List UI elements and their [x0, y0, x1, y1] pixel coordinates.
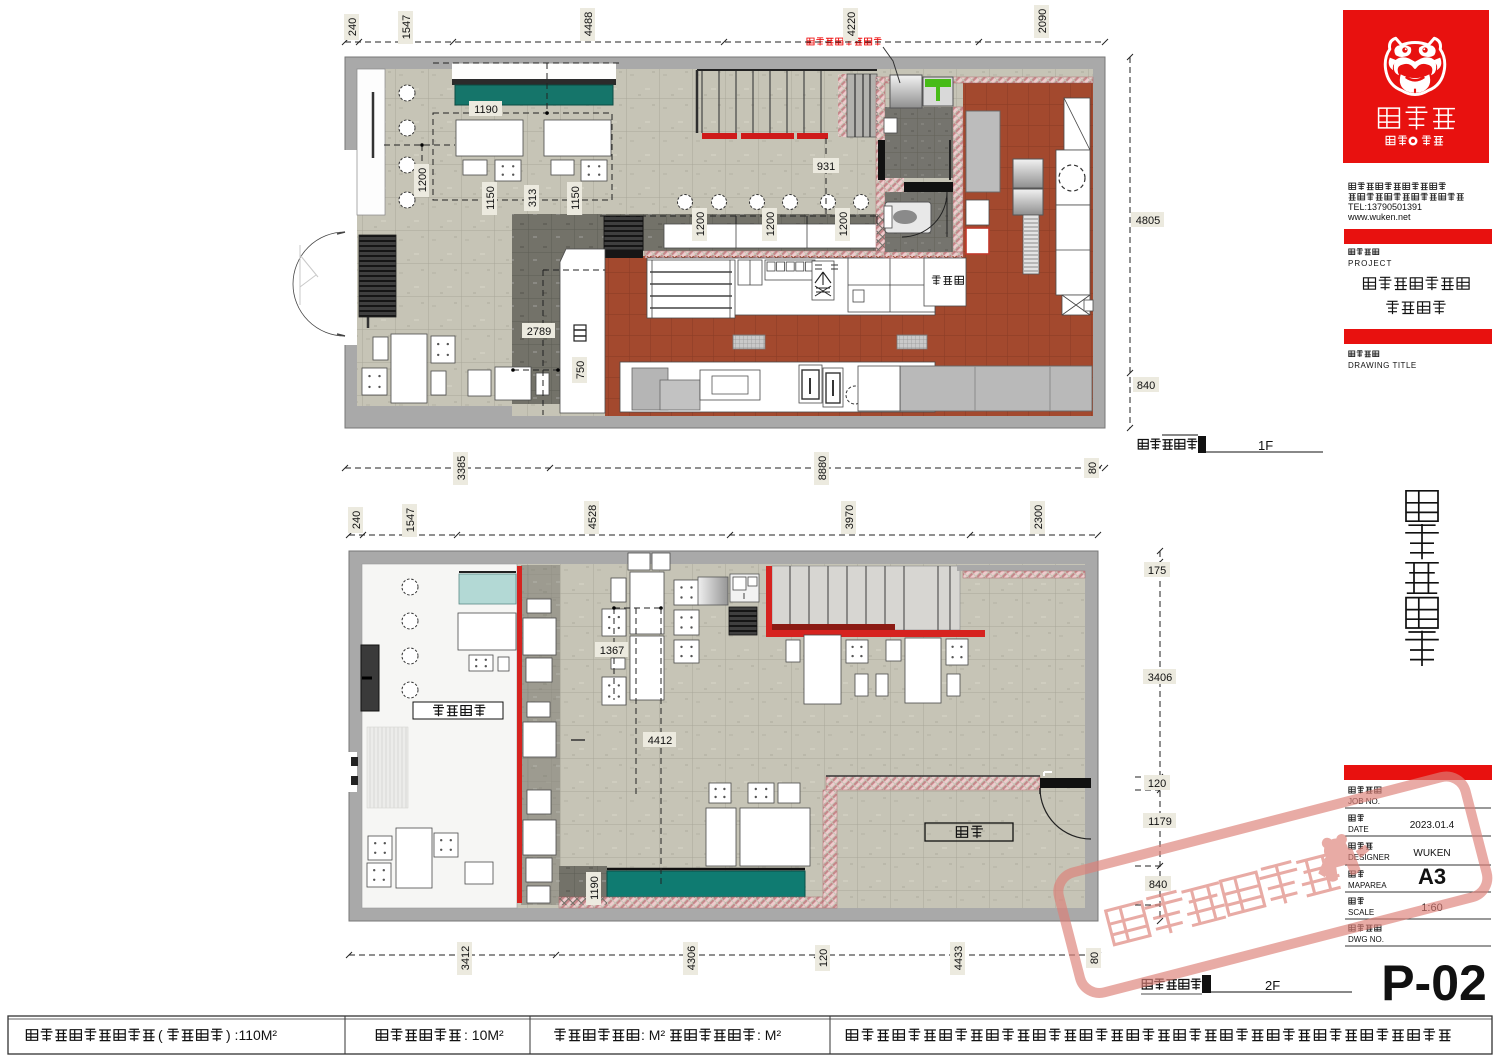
svg-text:1F: 1F: [1258, 438, 1273, 453]
svg-text:1150: 1150: [485, 186, 497, 210]
svg-text:3385: 3385: [456, 456, 468, 480]
svg-text:1200: 1200: [765, 212, 777, 236]
svg-text:3970: 3970: [844, 505, 856, 529]
svg-text:) :110M²: ) :110M²: [226, 1027, 277, 1043]
svg-text:SCALE: SCALE: [1348, 908, 1374, 917]
svg-text:: 10M²: : 10M²: [464, 1027, 504, 1043]
svg-text:840: 840: [1149, 879, 1167, 891]
svg-text:4412: 4412: [648, 735, 672, 747]
svg-text:2090: 2090: [1037, 9, 1049, 33]
svg-text:2F: 2F: [1265, 978, 1280, 993]
svg-text:2789: 2789: [527, 326, 551, 338]
svg-text:(: (: [158, 1027, 163, 1043]
svg-text:8880: 8880: [817, 456, 829, 480]
svg-text:4220: 4220: [846, 12, 858, 36]
svg-text:TEL:13790501391: TEL:13790501391: [1348, 202, 1422, 212]
svg-text:4528: 4528: [587, 505, 599, 529]
svg-text:4306: 4306: [686, 946, 698, 970]
svg-text:3406: 3406: [1148, 672, 1172, 684]
svg-text:1367: 1367: [600, 645, 624, 657]
svg-text:3412: 3412: [460, 946, 472, 970]
svg-text:: M²: : M²: [757, 1027, 781, 1043]
svg-text:DATE: DATE: [1348, 825, 1369, 834]
svg-text:240: 240: [347, 18, 359, 36]
svg-text:1200: 1200: [838, 212, 850, 236]
svg-text:240: 240: [351, 511, 363, 529]
svg-text:www.wuken.net: www.wuken.net: [1347, 212, 1411, 222]
svg-text:4805: 4805: [1136, 215, 1160, 227]
svg-text:1200: 1200: [417, 168, 429, 192]
svg-text:2023.01.4: 2023.01.4: [1410, 820, 1455, 831]
svg-text:MAPAREA: MAPAREA: [1348, 881, 1387, 890]
svg-text:80: 80: [1087, 462, 1099, 474]
svg-text:175: 175: [1148, 565, 1166, 577]
svg-text:P-02: P-02: [1381, 955, 1487, 1011]
svg-text:PROJECT: PROJECT: [1348, 259, 1392, 268]
svg-text:80: 80: [1089, 952, 1101, 964]
svg-text:1190: 1190: [474, 104, 498, 116]
svg-text:: M²: : M²: [641, 1027, 665, 1043]
svg-text:1200: 1200: [695, 212, 707, 236]
svg-text:2300: 2300: [1033, 505, 1045, 529]
svg-text:1547: 1547: [405, 508, 417, 532]
svg-text:1150: 1150: [570, 186, 582, 210]
svg-text:1547: 1547: [401, 15, 413, 39]
svg-text:A3: A3: [1418, 864, 1446, 889]
svg-text:931: 931: [817, 161, 835, 173]
svg-text:313: 313: [527, 189, 539, 207]
svg-text:1179: 1179: [1148, 816, 1172, 828]
svg-text:DRAWING TITLE: DRAWING TITLE: [1348, 361, 1417, 370]
svg-text:750: 750: [575, 361, 587, 379]
svg-text:WUKEN: WUKEN: [1413, 848, 1450, 859]
svg-text:4488: 4488: [583, 12, 595, 36]
svg-text:4433: 4433: [953, 946, 965, 970]
svg-text:DWG NO.: DWG NO.: [1348, 935, 1384, 944]
svg-text:840: 840: [1137, 380, 1155, 392]
svg-text:120: 120: [818, 949, 830, 967]
svg-text:1190: 1190: [589, 876, 601, 900]
svg-text:120: 120: [1148, 778, 1166, 790]
